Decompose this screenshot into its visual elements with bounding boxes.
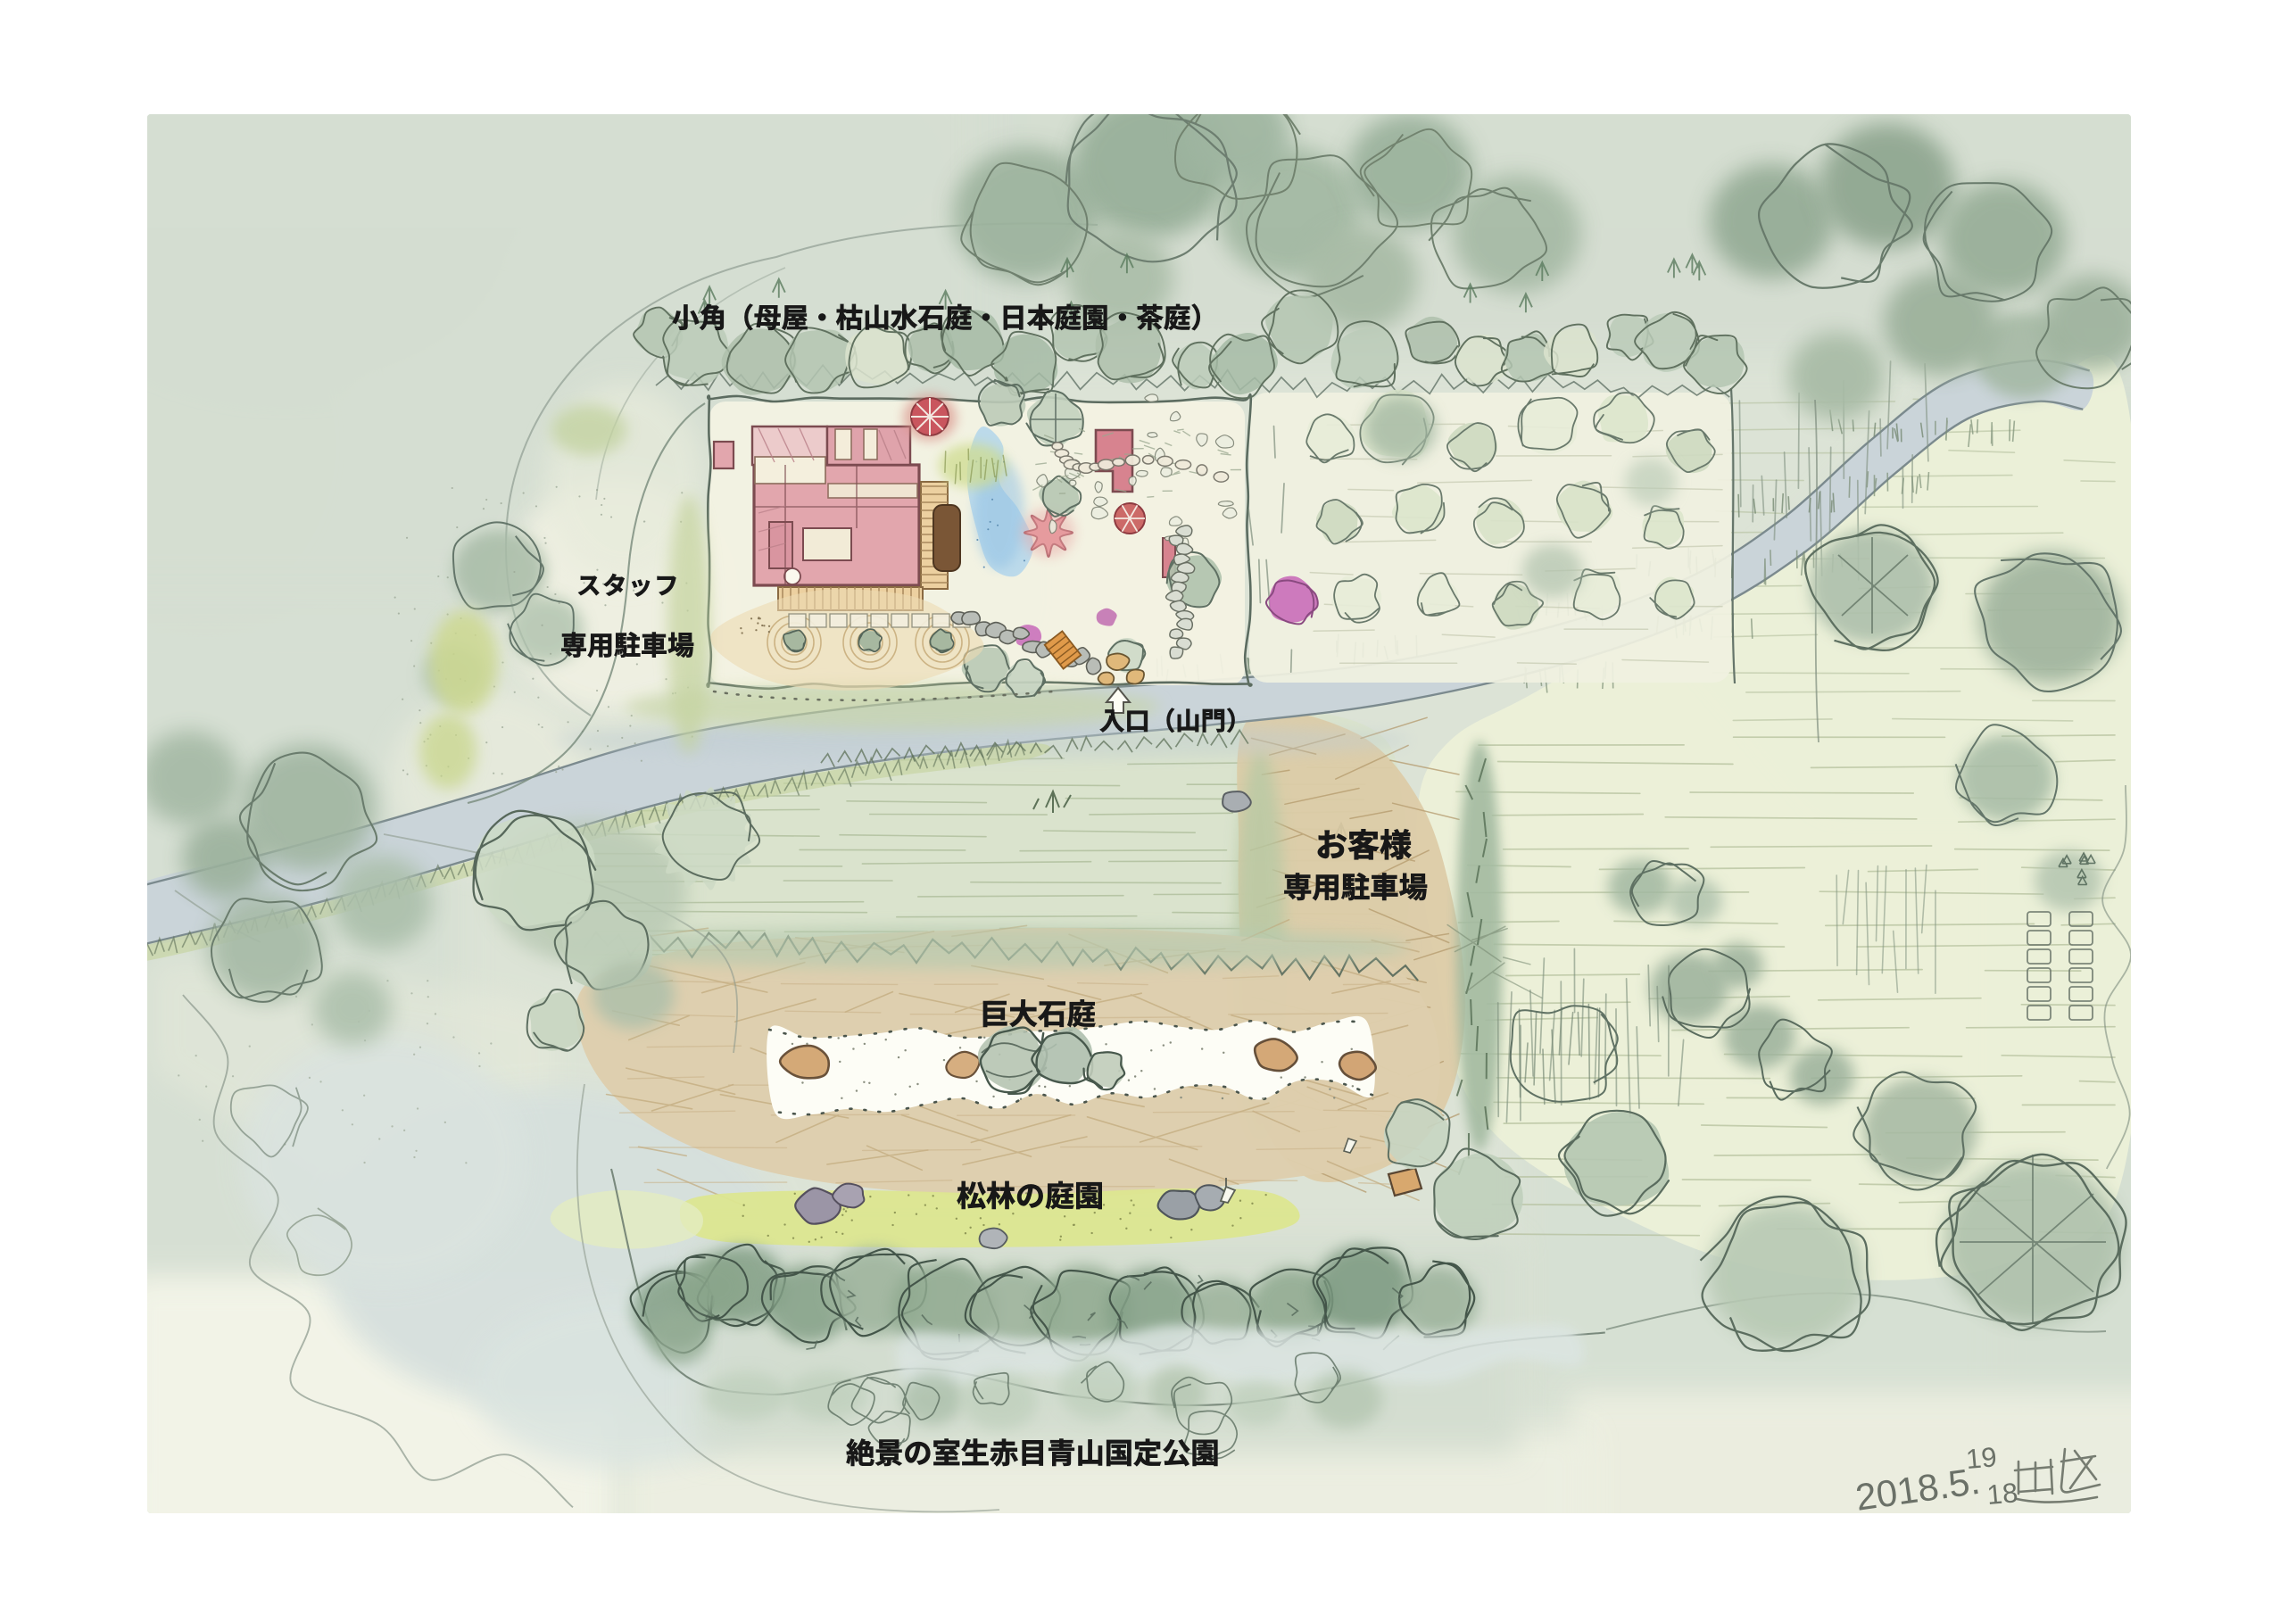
svg-text:19: 19 bbox=[1965, 1441, 1998, 1475]
svg-text:18: 18 bbox=[1985, 1477, 2018, 1511]
